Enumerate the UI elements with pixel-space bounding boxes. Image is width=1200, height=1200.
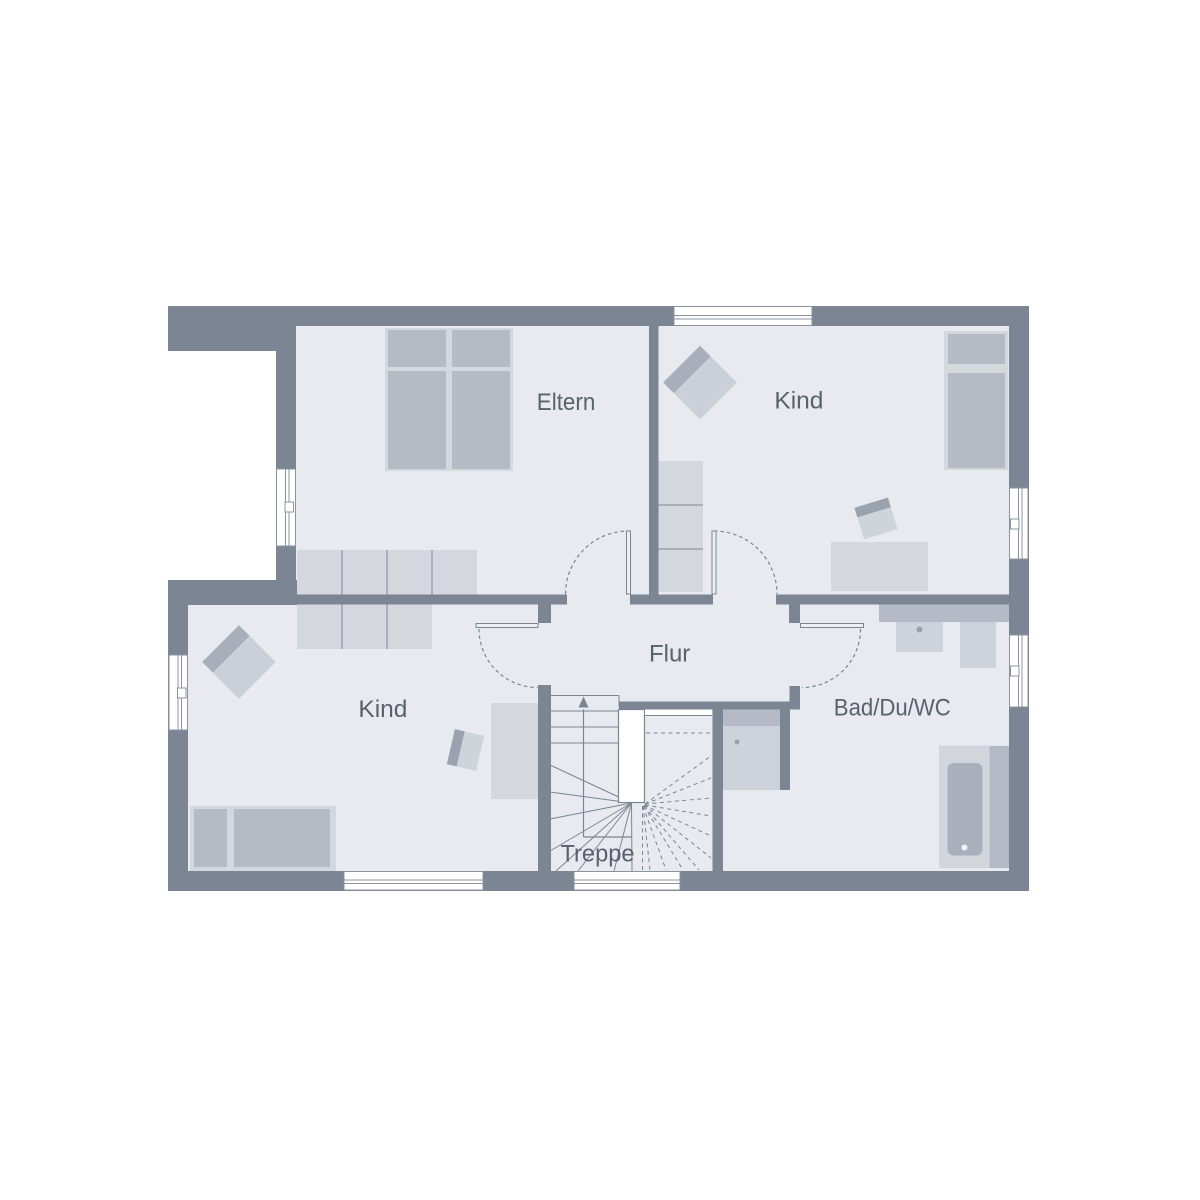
svg-text:Bad/Du/WC: Bad/Du/WC bbox=[834, 695, 951, 722]
svg-text:Kind: Kind bbox=[774, 388, 823, 415]
svg-text:Kind: Kind bbox=[358, 696, 407, 723]
svg-text:Eltern: Eltern bbox=[537, 389, 596, 416]
svg-text:Flur: Flur bbox=[649, 641, 690, 668]
svg-text:Treppe: Treppe bbox=[561, 841, 635, 868]
